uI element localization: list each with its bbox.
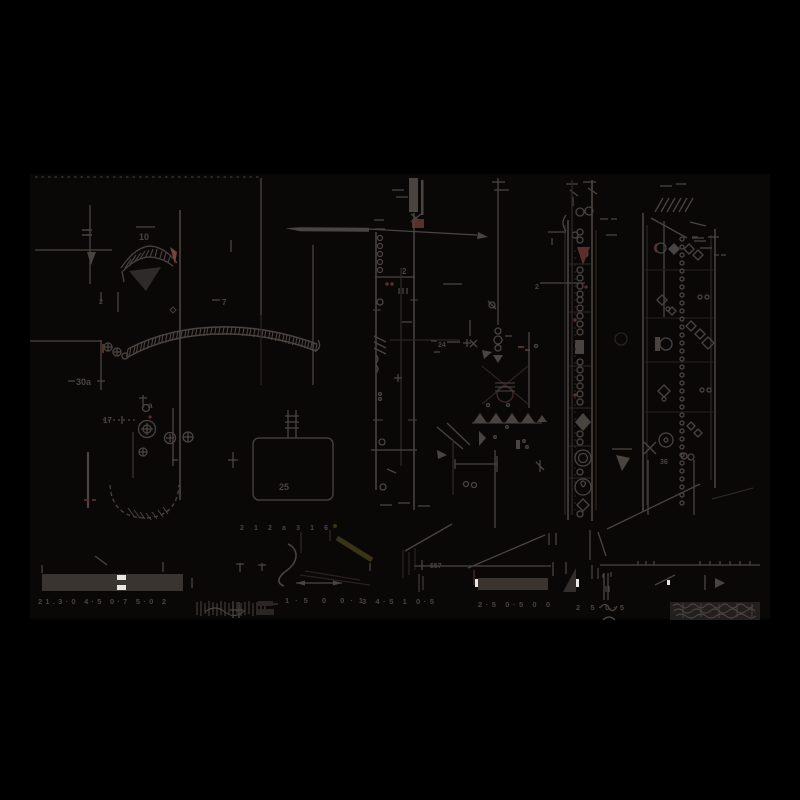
svg-text:24: 24 (438, 342, 446, 349)
svg-text:2: 2 (402, 267, 407, 276)
svg-text:25: 25 (279, 482, 289, 492)
svg-text:36: 36 (660, 459, 668, 466)
svg-text:30a: 30a (76, 377, 92, 387)
svg-text:7: 7 (222, 298, 227, 307)
svg-text:10: 10 (139, 232, 149, 242)
svg-text:557: 557 (430, 563, 442, 570)
svg-text:2: 2 (535, 284, 539, 291)
svg-text:1·5 0 0·1: 1·5 0 0·1 (285, 596, 363, 605)
